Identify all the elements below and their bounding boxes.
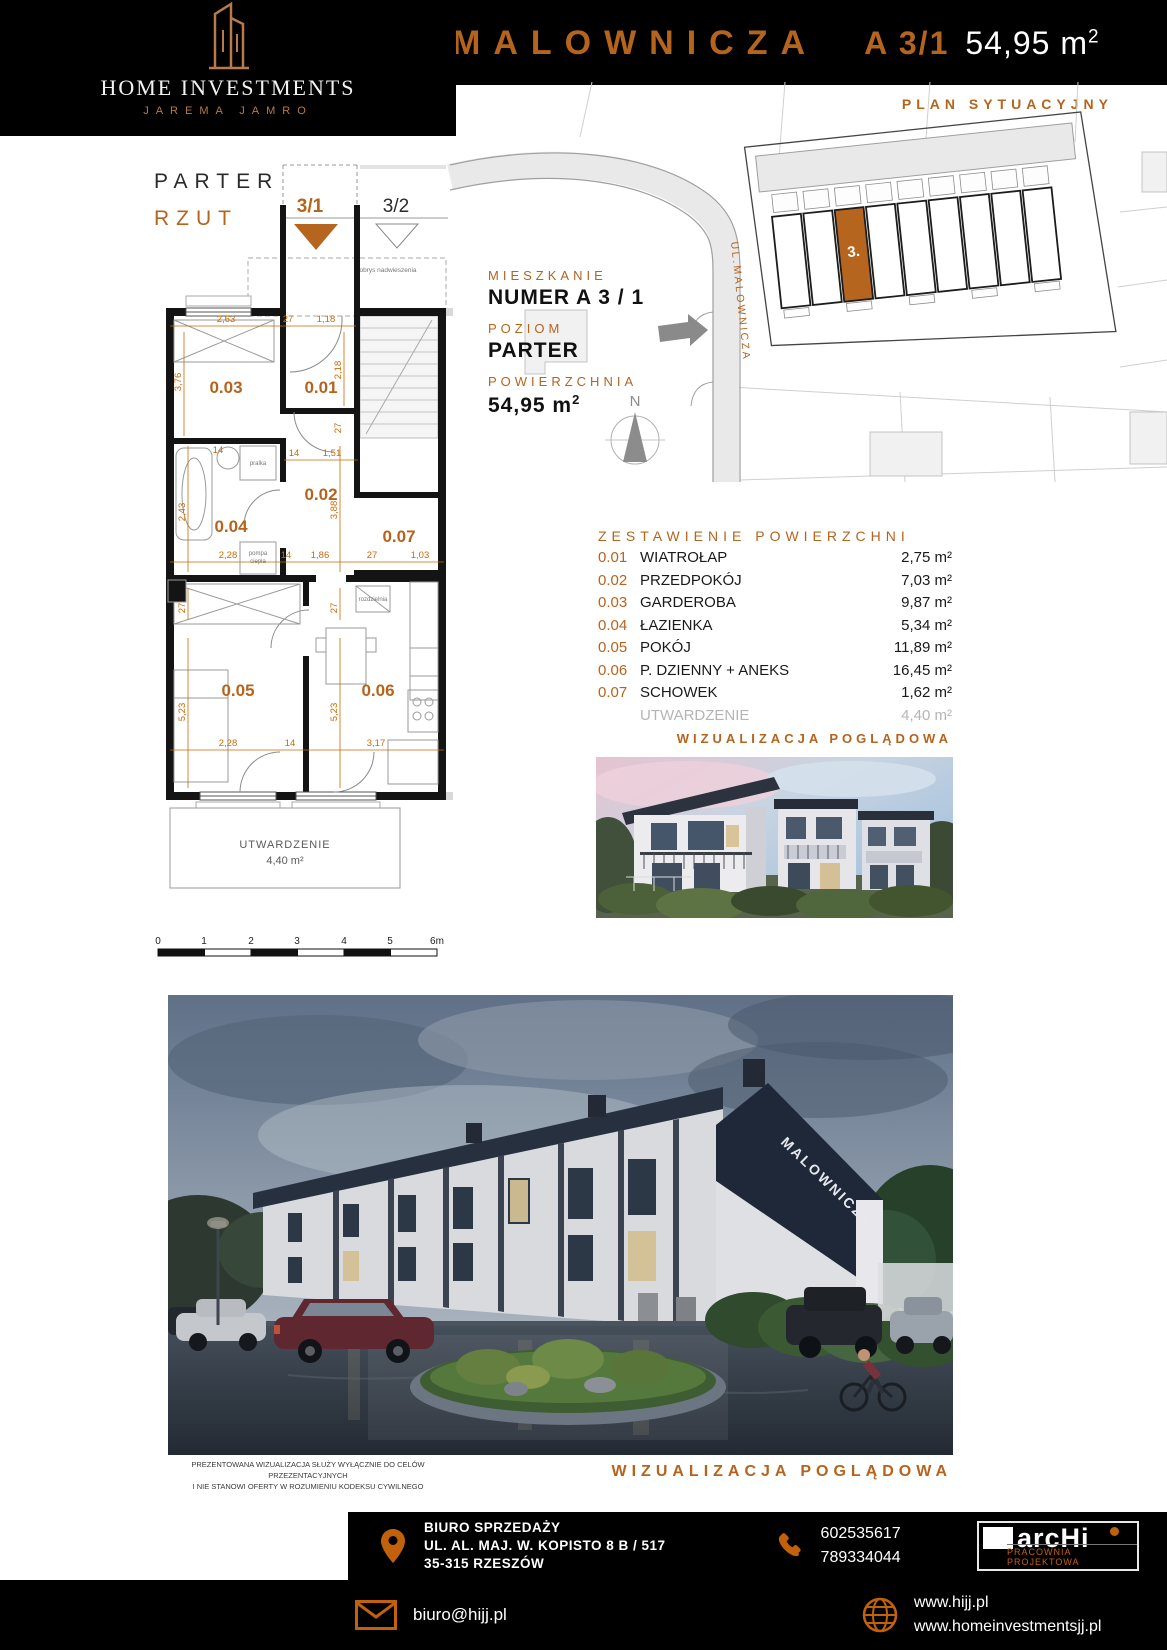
dim-t2: 27: [283, 314, 294, 325]
room-005: 0.05: [221, 681, 254, 700]
email-icon: [355, 1600, 397, 1630]
utwardzenie-area: 4,40 m²: [266, 855, 304, 867]
dim-v523b: 5,23: [329, 703, 340, 722]
websites: www.hijj.pl www.homeinvestmentsjj.pl: [914, 1591, 1102, 1639]
visualization-label-top: WIZUALIZACJA POGLĄDOWA: [598, 731, 952, 746]
dim-t3: 1,18: [317, 314, 336, 325]
area-value: 11,89 m²: [894, 639, 952, 656]
unit-markers: 3/1 3/2 obrys nadwieszenia: [248, 196, 448, 316]
area-code: 0.02: [598, 572, 640, 589]
area-name: UTWARDZENIE: [640, 707, 901, 724]
area-name: POKÓJ: [640, 639, 894, 656]
brand-name: HOME INVESTMENTS: [100, 75, 355, 101]
dim-m3: 1,86: [311, 550, 330, 561]
area-row: 0.02PRZEDPOKÓJ7,03 m²: [598, 572, 952, 595]
address-line-1: UL. AL. MAJ. W. KOPISTO 8 B / 517: [424, 1537, 666, 1555]
dim-v27a: 27: [333, 423, 344, 434]
staircase: [360, 316, 438, 438]
area-row: 0.01WIATROŁAP2,75 m²: [598, 549, 952, 572]
area-schedule-title: ZESTAWIENIE POWIERZCHNI: [598, 528, 952, 544]
area-value: 2,75 m²: [901, 549, 952, 566]
header-title-row: MALOWNICZA A 3/1 54,95 m2: [452, 24, 1122, 72]
area-schedule: ZESTAWIENIE POWIERZCHNI 0.01WIATROŁAP2,7…: [598, 528, 952, 729]
marker-this-unit: 3/1: [297, 196, 324, 217]
phone-number-1: 602535617: [821, 1522, 901, 1546]
scale-4: 4: [341, 936, 347, 947]
unit-number: A 3/1: [864, 25, 949, 62]
dim-m2: 14: [281, 550, 292, 561]
area-name: P. DZIENNY + ANEKS: [640, 662, 893, 679]
room-003: 0.03: [209, 378, 242, 397]
info-value-poziom: PARTER: [488, 339, 718, 363]
dim-b2: 14: [285, 738, 296, 749]
footer-web-bar: biuro@hijj.pl www.hijj.pl www.homeinvest…: [0, 1580, 1167, 1650]
area-row: 0.03GARDEROBA9,87 m²: [598, 594, 952, 617]
area-name: GARDEROBA: [640, 594, 901, 611]
room-001: 0.01: [304, 378, 337, 397]
dim-v243: 2,43: [177, 503, 188, 522]
area-code: 0.01: [598, 549, 640, 566]
dim-v27c: 27: [329, 603, 340, 614]
dim-v523a: 5,23: [177, 703, 188, 722]
dim-m5: 1,03: [411, 550, 430, 561]
area-code: 0.07: [598, 684, 640, 701]
scale-6: 6m: [430, 936, 444, 947]
room-007: 0.07: [382, 527, 415, 546]
area-value: 1,62 m²: [901, 684, 952, 701]
area-code: 0.06: [598, 662, 640, 679]
brochure-page: MALOWNICZA A 3/1 54,95 m2 HOME INVESTMEN…: [0, 0, 1167, 1650]
dim-d14a: 14: [289, 448, 300, 459]
visualization-label-bottom: WIZUALIZACJA POGLĄDOWA: [560, 1463, 952, 1481]
email-address: biuro@hijj.pl: [413, 1605, 507, 1625]
utwardzenie-label: UTWARDZENIE: [239, 839, 330, 851]
area-row: 0.05POKÓJ11,89 m²: [598, 639, 952, 662]
development: 3.: [745, 111, 1116, 368]
highlighted-unit-number: 3.: [846, 243, 860, 261]
dim-m4: 27: [367, 550, 378, 561]
scale-5: 5: [387, 936, 393, 947]
globe-icon: [862, 1597, 898, 1633]
area-name: WIATROŁAP: [640, 549, 901, 566]
floor-plan: 3/1 3/2 obrys nadwieszenia: [88, 150, 453, 975]
area-name: ŁAZIENKA: [640, 617, 901, 634]
sales-office-address: BIURO SPRZEDAŻY UL. AL. MAJ. W. KOPISTO …: [424, 1519, 666, 1574]
info-value-powierzchnia: 54,95 m2: [488, 392, 718, 418]
archi-logo-subtitle: PRACOWNIA PROJEKTOWA: [1007, 1544, 1137, 1567]
main-render-image: MALOWNICZA: [168, 995, 953, 1455]
area-name: SCHOWEK: [640, 684, 901, 701]
dim-v376: 3,76: [173, 373, 184, 392]
website-1: www.hijj.pl: [914, 1591, 1102, 1615]
dim-v388: 3,88: [329, 501, 340, 520]
phone-number-2: 789334044: [821, 1546, 901, 1570]
footer-contact-bar: BIURO SPRZEDAŻY UL. AL. MAJ. W. KOPISTO …: [348, 1512, 1167, 1580]
apartment-info: MIESZKANIE NUMER A 3 / 1 POZIOM PARTER P…: [488, 268, 718, 418]
disclaimer-line-1: PREZENTOWANA WIZUALIZACJA SŁUŻY WYŁĄCZNI…: [158, 1460, 458, 1482]
company-logo: HOME INVESTMENTS JAREMA JAMRO: [0, 0, 456, 136]
area-value: 5,34 m²: [901, 617, 952, 634]
marker-this-triangle: [294, 224, 338, 250]
area-value: 7,03 m²: [901, 572, 952, 589]
location-pin-icon: [380, 1528, 406, 1564]
dim-m1: 2,28: [219, 550, 238, 561]
dim-t1: 2,63: [217, 314, 236, 325]
area-value: 16,45 m²: [893, 662, 952, 679]
unit-area: 54,95 m2: [965, 25, 1099, 62]
marker-next-unit: 3/2: [383, 196, 409, 217]
area-value: 9,87 m²: [901, 594, 952, 611]
washer-label: pralka: [250, 461, 267, 467]
area-row-utwardzenie: UTWARDZENIE4,40 m²: [598, 707, 952, 730]
area-name: PRZEDPOKÓJ: [640, 572, 901, 589]
dim-d14b: 14: [213, 445, 224, 456]
room-006: 0.06: [361, 681, 394, 700]
archi-logo-dot: [1110, 1527, 1119, 1536]
dim-d151: 1,51: [323, 448, 342, 459]
dim-v27b: 27: [177, 603, 188, 614]
heatpump-label-1: pompa: [249, 551, 268, 557]
address-line-2: 35-315 RZESZÓW: [424, 1555, 666, 1573]
scale-0: 0: [155, 936, 161, 947]
dim-b3: 3,17: [367, 738, 386, 749]
room-004: 0.04: [214, 517, 248, 536]
info-value-numer: NUMER A 3 / 1: [488, 286, 718, 310]
area-row: 0.04ŁAZIENKA5,34 m²: [598, 617, 952, 640]
overhang-label: obrys nadwieszenia: [359, 267, 416, 274]
info-label-poziom: POZIOM: [488, 321, 718, 336]
marker-next-triangle: [376, 224, 418, 248]
scale-2: 2: [248, 936, 254, 947]
project-title: MALOWNICZA: [452, 24, 818, 63]
area-code: 0.03: [598, 594, 640, 611]
archi-studio-logo: arcHi PRACOWNIA PROJEKTOWA: [977, 1521, 1139, 1571]
disclaimer-text: PREZENTOWANA WIZUALIZACJA SŁUŻY WYŁĄCZNI…: [158, 1460, 458, 1493]
scale-3: 3: [294, 936, 300, 947]
phone-numbers: 602535617 789334044: [821, 1522, 901, 1570]
small-render-image: [596, 757, 953, 918]
disclaimer-line-2: I NIE STANOWI OFERTY W ROZUMIENIU KODEKS…: [158, 1482, 458, 1493]
board-label: rozdzielnia: [359, 597, 388, 603]
office-title: BIURO SPRZEDAŻY: [424, 1519, 666, 1537]
area-row: 0.07SCHOWEK1,62 m²: [598, 684, 952, 707]
scale-1: 1: [201, 936, 207, 947]
dim-v218: 2,18: [333, 361, 344, 380]
website-2: www.homeinvestmentsjj.pl: [914, 1615, 1102, 1639]
info-label-powierzchnia: POWIERZCHNIA: [488, 374, 718, 389]
info-label-mieszkanie: MIESZKANIE: [488, 268, 718, 283]
utwardzenie: UTWARDZENIE 4,40 m²: [170, 808, 400, 888]
logo-building-icon: [197, 0, 259, 72]
scale-bar: 0 1 2 3 4 5 6m: [155, 936, 444, 956]
brand-subname: JAREMA JAMRO: [143, 105, 313, 117]
area-code: 0.04: [598, 617, 640, 634]
phone-icon: [771, 1530, 803, 1562]
area-value: 4,40 m²: [901, 707, 952, 724]
area-row: 0.06P. DZIENNY + ANEKS16,45 m²: [598, 662, 952, 685]
dim-b1: 2,28: [219, 738, 238, 749]
unit-row: 3.: [770, 166, 1062, 319]
area-code: 0.05: [598, 639, 640, 656]
